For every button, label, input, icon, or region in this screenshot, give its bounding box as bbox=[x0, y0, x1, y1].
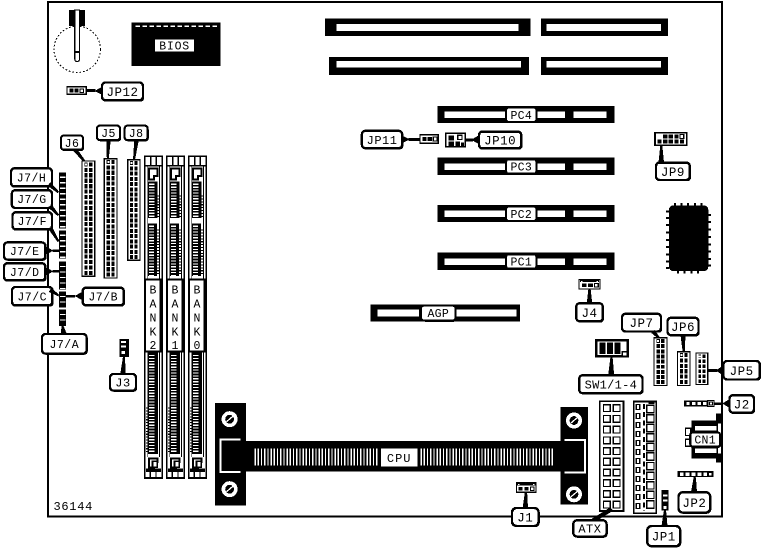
svg-text:JP11: JP11 bbox=[367, 134, 398, 148]
svg-text:N: N bbox=[193, 312, 200, 325]
svg-text:K: K bbox=[193, 326, 200, 339]
svg-text:J7/H: J7/H bbox=[17, 173, 47, 186]
svg-text:J8: J8 bbox=[129, 128, 144, 141]
svg-text:JP9: JP9 bbox=[661, 166, 685, 180]
svg-text:B: B bbox=[149, 285, 156, 298]
svg-text:A: A bbox=[171, 299, 178, 312]
svg-text:BIOS: BIOS bbox=[159, 41, 190, 54]
svg-text:1: 1 bbox=[171, 340, 178, 353]
svg-text:J4: J4 bbox=[581, 307, 597, 321]
svg-text:K: K bbox=[171, 326, 178, 339]
svg-text:J7/E: J7/E bbox=[10, 246, 40, 259]
svg-text:A: A bbox=[193, 299, 200, 312]
svg-text:A: A bbox=[149, 299, 156, 312]
svg-text:JP7: JP7 bbox=[629, 317, 653, 331]
svg-text:PC3: PC3 bbox=[510, 162, 532, 175]
svg-text:J1: J1 bbox=[517, 512, 533, 526]
svg-text:PC4: PC4 bbox=[510, 110, 532, 123]
svg-text:J3: J3 bbox=[115, 377, 130, 391]
svg-text:J7/F: J7/F bbox=[17, 216, 47, 229]
svg-text:ATX: ATX bbox=[578, 523, 601, 537]
svg-text:PC2: PC2 bbox=[510, 209, 532, 222]
svg-text:J6: J6 bbox=[65, 138, 80, 151]
svg-text:2: 2 bbox=[149, 340, 156, 353]
svg-text:JP10: JP10 bbox=[484, 135, 516, 149]
svg-text:B: B bbox=[171, 285, 178, 298]
svg-text:AGP: AGP bbox=[427, 308, 449, 321]
svg-text:SW1/1-4: SW1/1-4 bbox=[585, 379, 638, 393]
svg-text:J7/A: J7/A bbox=[49, 339, 79, 352]
svg-text:JP12: JP12 bbox=[106, 86, 138, 100]
svg-text:CPU: CPU bbox=[387, 452, 412, 466]
svg-text:N: N bbox=[149, 312, 156, 325]
svg-text:J5: J5 bbox=[101, 128, 116, 141]
svg-text:CN1: CN1 bbox=[694, 435, 716, 448]
svg-text:J2: J2 bbox=[734, 398, 750, 412]
svg-text:JP6: JP6 bbox=[671, 321, 695, 335]
svg-text:JP1: JP1 bbox=[652, 531, 676, 545]
svg-text:0: 0 bbox=[193, 340, 200, 353]
svg-text:J7/C: J7/C bbox=[17, 291, 47, 304]
svg-text:J7/D: J7/D bbox=[10, 267, 40, 280]
svg-text:36144: 36144 bbox=[54, 500, 94, 514]
svg-text:PC1: PC1 bbox=[510, 257, 532, 270]
svg-text:JP2: JP2 bbox=[682, 497, 706, 511]
svg-text:JP5: JP5 bbox=[730, 365, 754, 379]
svg-text:J7/B: J7/B bbox=[88, 292, 118, 305]
svg-text:J7/G: J7/G bbox=[17, 194, 47, 207]
svg-text:K: K bbox=[149, 326, 156, 339]
svg-text:B: B bbox=[193, 285, 200, 298]
svg-text:N: N bbox=[171, 312, 178, 325]
